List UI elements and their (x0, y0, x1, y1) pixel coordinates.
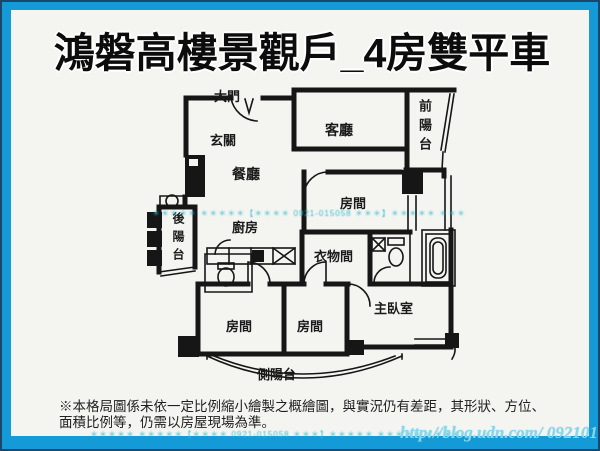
room-label-front-balcony: 前陽台 (415, 99, 434, 156)
room-label-side-balcony: 側陽台 (257, 364, 296, 383)
room-label-back-balcony: 後陽台 (170, 212, 187, 266)
room-label-bedroom-2: 房間 (226, 316, 252, 335)
watermark-blog-url: http://blog.udn.com/ 0921015058 (400, 423, 600, 443)
room-label-closet-room: 衣物間 (314, 246, 353, 265)
room-label-bedroom-3: 房間 (297, 316, 323, 335)
room-label-living-room: 客廳 (325, 120, 353, 140)
watermark-strip-upper: ＊＊＊＊＊ ＊＊＊＊＊【＊＊＊＊ 0921-015058 ＊＊＊】＊＊＊＊＊ ＊… (152, 208, 464, 219)
disclaimer-line-1: ※本格局圖係未依一定比例縮小繪製之概繪圖，與實況仍有差距，其形狀、方位、 (59, 399, 554, 415)
room-label-kitchen: 廚房 (232, 217, 258, 236)
room-label-dining-room: 餐廳 (232, 164, 260, 184)
floor-plan-drawing (2, 2, 600, 451)
room-label-master-bedroom: 主臥室 (374, 298, 413, 317)
room-label-main-door: 大門 (214, 86, 240, 105)
floorplan-image: 鴻磐高樓景觀戶_4房雙平車 (0, 0, 600, 451)
room-label-entry: 玄關 (210, 130, 236, 149)
